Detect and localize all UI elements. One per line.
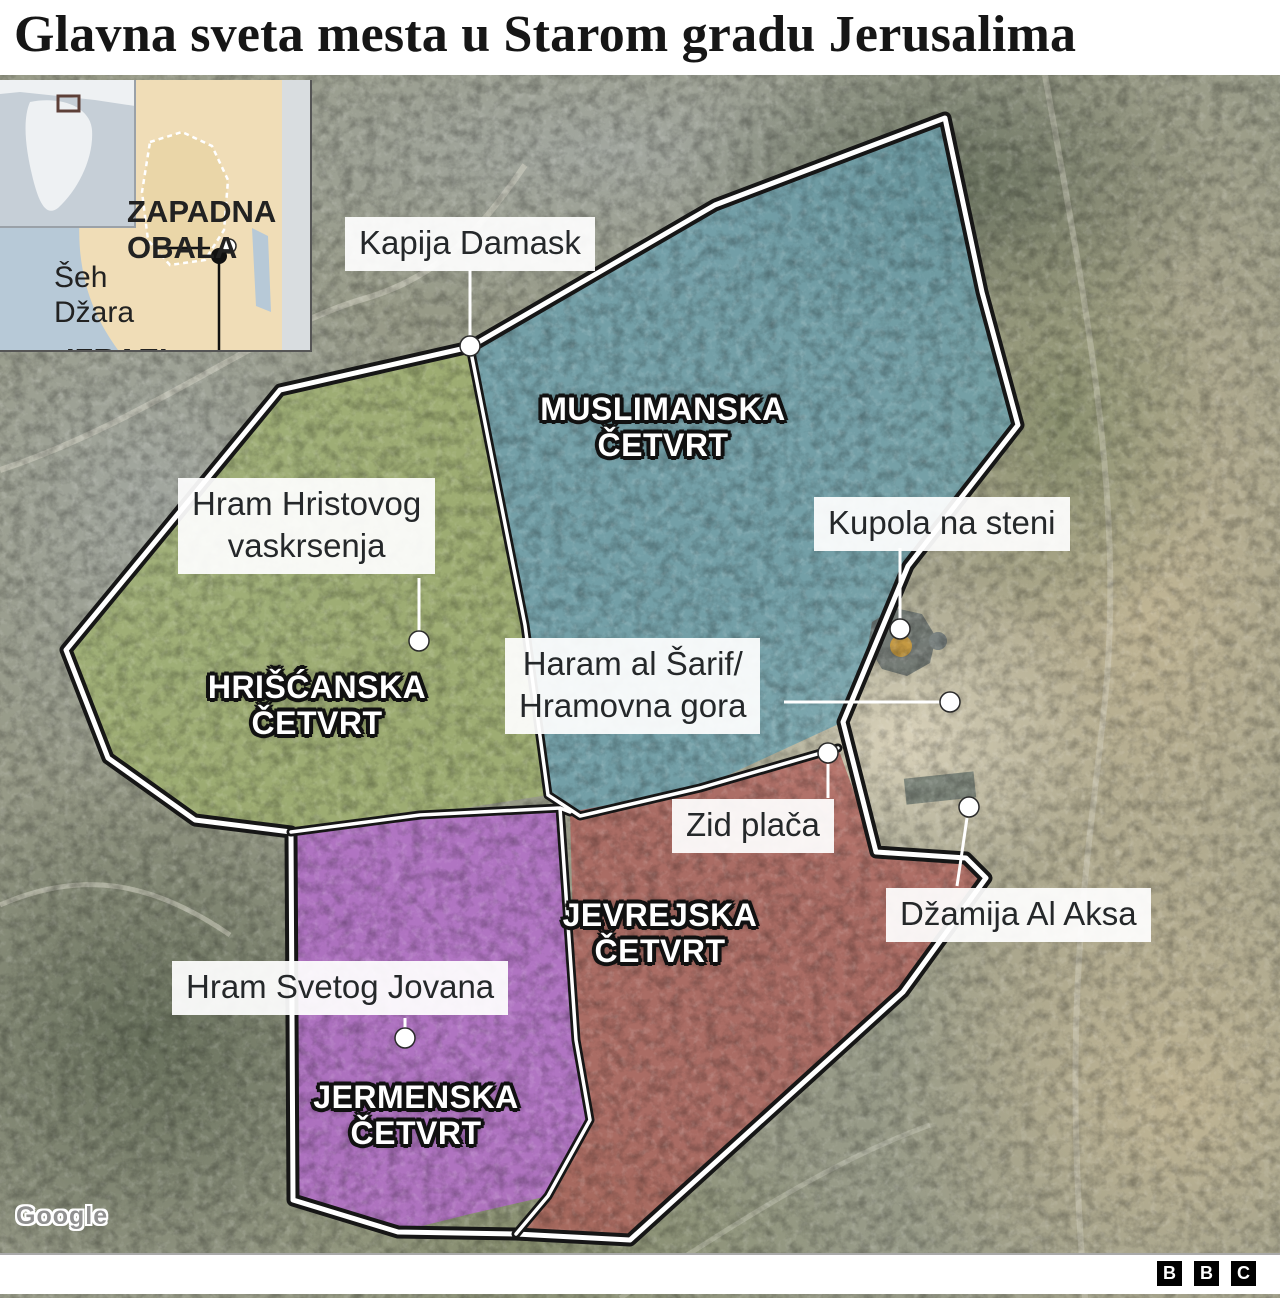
label-western-wall: Zid plača	[672, 799, 834, 853]
inset-map: ZAPADNA OBALA Šeh Džara IZRAEL	[0, 80, 312, 352]
infographic: Glavna sveta mesta u Starom gradu Jerusa…	[0, 0, 1280, 1298]
inset-label-israel: IZRAEL	[66, 342, 178, 352]
label-armenian-quarter: JERMENSKAČETVRT	[313, 1080, 518, 1152]
label-temple-mount: Haram al Šarif/Hramovna gora	[505, 638, 760, 734]
label-dome-of-rock: Kupola na steni	[814, 497, 1070, 551]
bbc-logo-letter: C	[1231, 1261, 1256, 1286]
bbc-logo-letter: B	[1194, 1261, 1219, 1286]
google-attribution: Google	[16, 1202, 108, 1231]
inset-label-west-bank: ZAPADNA OBALA	[127, 194, 276, 266]
page-title: Glavna sveta mesta u Starom gradu Jerusa…	[14, 2, 1274, 67]
label-damascus-gate: Kapija Damask	[345, 217, 595, 271]
bbc-logo: B B C	[1157, 1261, 1256, 1286]
label-christian-quarter: HRIŠĆANSKAČETVRT	[208, 670, 426, 742]
footer-bar: B B C	[0, 1253, 1280, 1294]
label-al-aqsa: Džamija Al Aksa	[886, 888, 1151, 942]
label-muslim-quarter: MUSLIMANSKAČETVRT	[540, 392, 785, 464]
label-jewish-quarter: JEVREJSKAČETVRT	[563, 898, 758, 970]
bbc-logo-letter: B	[1157, 1261, 1182, 1286]
label-holy-sepulchre: Hram Hristovogvaskrsenja	[178, 478, 435, 574]
label-st-john: Hram Svetog Jovana	[172, 961, 508, 1015]
inset-label-sheikh-jarrah: Šeh Džara	[54, 261, 134, 330]
inset-world-locator	[0, 80, 135, 228]
